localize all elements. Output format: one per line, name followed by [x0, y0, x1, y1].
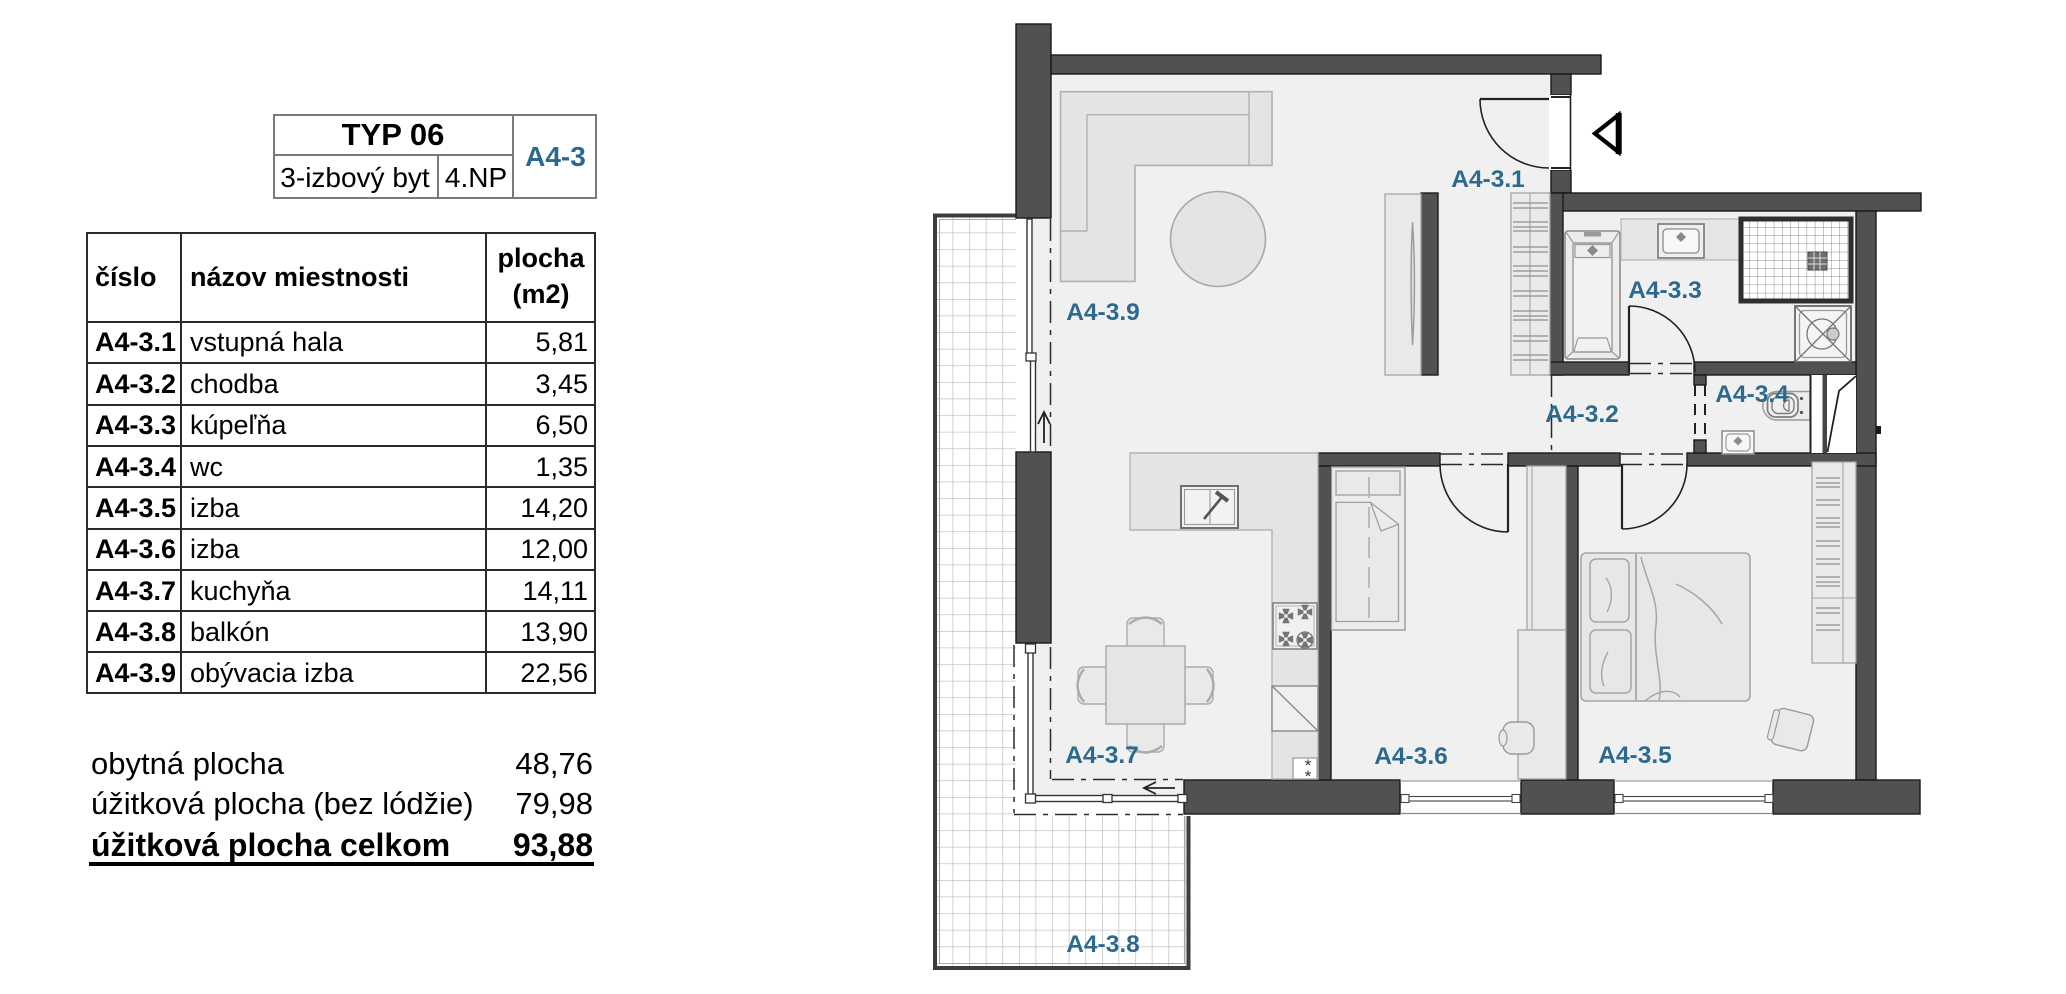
svg-text:A4-3.4: A4-3.4	[1715, 381, 1789, 408]
svg-text:A4-3.5: A4-3.5	[1598, 742, 1672, 769]
svg-text:A4-3.2: A4-3.2	[1545, 401, 1619, 428]
svg-text:A4-3.7: A4-3.7	[1065, 742, 1139, 769]
svg-text:A4-3.8: A4-3.8	[1066, 931, 1140, 958]
svg-text:A4-3.1: A4-3.1	[1451, 166, 1525, 193]
svg-text:A4-3.9: A4-3.9	[1066, 299, 1140, 326]
svg-text:*: *	[1305, 767, 1312, 786]
svg-text:A4-3.3: A4-3.3	[1628, 277, 1702, 304]
svg-text:A4-3.6: A4-3.6	[1374, 743, 1448, 770]
